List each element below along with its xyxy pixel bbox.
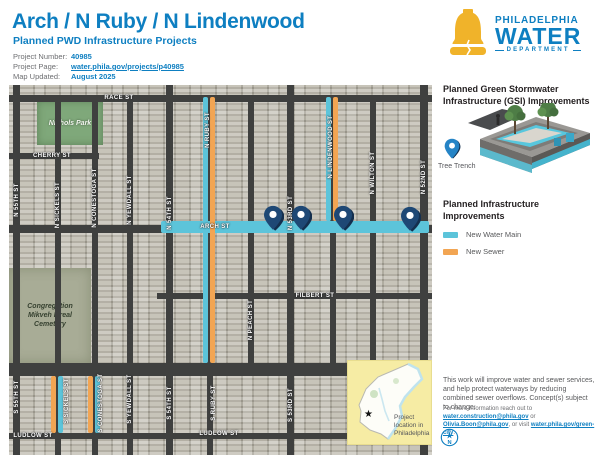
contact-mid2: , or visit — [509, 422, 531, 428]
map-updated-value: August 2025 — [71, 72, 116, 82]
city-locator-inset: ★ Project location in Philadelphia — [347, 360, 432, 445]
contact-email-construction[interactable]: water.construction@phila.gov — [443, 414, 529, 420]
pwd-project-map-page: Arch / N Ruby / N Lindenwood Planned PWD… — [0, 0, 600, 463]
street-label: S 53RD ST — [288, 388, 294, 422]
street-label: CHERRY ST — [33, 153, 71, 159]
water-main-label: New Water Main — [466, 230, 521, 239]
street-label: N CONESTOGA ST — [92, 168, 98, 227]
gsi-location-pin-icon[interactable] — [399, 206, 421, 233]
street-label: N 52ND ST — [421, 160, 427, 194]
cemetery-label: Congregation Mikveh Isreal Cemetery — [27, 302, 73, 329]
street-label: LUDLOW ST — [13, 433, 52, 439]
gsi-location-pin-icon[interactable] — [332, 205, 354, 232]
project-number-row: Project Number: 40985 — [13, 52, 184, 62]
new-sewer-line — [88, 376, 93, 433]
logo-text: PHILADELPHIA WATER DEPARTMENT — [495, 15, 581, 53]
project-page-row: Project Page: water.phila.gov/projects/p… — [13, 62, 184, 72]
street-label: N SICKELS ST — [55, 182, 61, 228]
legend-row-sewer: New Sewer — [443, 247, 504, 256]
street-label: N YEWDALL ST — [127, 175, 133, 225]
street-label: S 55TH ST — [14, 380, 20, 413]
liberty-bell-icon — [448, 9, 488, 59]
project-map[interactable]: Nichols Park Congregation Mikveh Isreal … — [9, 85, 432, 455]
tree-trench-label: Tree Trench — [438, 163, 475, 170]
street-label: N 54TH ST — [167, 196, 173, 230]
inset-caption: Project location in Philadelphia — [394, 414, 431, 438]
street-label: N 55TH ST — [14, 183, 20, 217]
street-label: S SICKELS ST — [64, 378, 70, 424]
project-number-value: 40985 — [71, 52, 92, 62]
new-sewer-label: New Sewer — [466, 247, 504, 256]
street-label: S YEWDALL ST — [127, 374, 133, 423]
gsi-location-pin-icon[interactable] — [290, 205, 312, 232]
map-updated-row: Map Updated: August 2025 — [13, 72, 184, 82]
tree-trench-pin-icon — [443, 138, 461, 160]
page-subtitle: Planned PWD Infrastructure Projects — [13, 35, 197, 47]
street-road — [9, 95, 432, 102]
project-number-label: Project Number: — [13, 52, 71, 62]
logo-water: WATER — [495, 26, 581, 47]
new-water-main-line — [58, 376, 63, 433]
street-label: N WILTON ST — [370, 152, 376, 195]
pwd-logo: PHILADELPHIA WATER DEPARTMENT — [448, 8, 593, 60]
street-label: FILBERT ST — [296, 293, 335, 299]
new-sewer-line — [51, 376, 56, 433]
logo-department: DEPARTMENT — [495, 47, 581, 53]
project-page-link[interactable]: water.phila.gov/projects/p40985 — [71, 62, 184, 72]
contact-mid1: or — [529, 414, 536, 420]
contact-text: For more information reach out to water.… — [443, 405, 596, 437]
street-label: LUDLOW ST — [199, 431, 238, 437]
street-label: RACE ST — [104, 95, 133, 101]
tree-trench-illustration — [468, 103, 594, 177]
compass-n-letter: N — [447, 440, 451, 446]
street-label: N LINDENWOOD ST — [328, 116, 334, 179]
page-title: Arch / N Ruby / N Lindenwood — [12, 10, 305, 34]
project-location-star: ★ — [364, 409, 373, 420]
cemetery-area: Congregation Mikveh Isreal Cemetery — [9, 268, 91, 363]
street-label: S 54TH ST — [167, 386, 173, 419]
new-sewer-swatch — [443, 249, 458, 255]
map-updated-label: Map Updated: — [13, 72, 71, 82]
street-label: S RUBY ST — [211, 385, 217, 421]
north-compass-icon: N — [440, 428, 459, 447]
infra-heading: Planned Infrastructure Improvements — [443, 199, 595, 222]
gsi-location-pin-icon[interactable] — [262, 205, 284, 232]
street-road — [157, 293, 432, 299]
contact-prefix: For more information reach out to — [443, 406, 532, 412]
street-label: N RUBY ST — [205, 112, 211, 148]
street-label: N PEACH ST — [248, 300, 254, 340]
street-label: S CONESTOGA ST — [98, 374, 104, 433]
legend-row-water: New Water Main — [443, 230, 521, 239]
project-info: Project Number: 40985 Project Page: wate… — [13, 52, 184, 82]
water-main-swatch — [443, 232, 458, 238]
street-label: ARCH ST — [200, 224, 229, 230]
street-road — [370, 95, 376, 376]
project-page-label: Project Page: — [13, 62, 71, 72]
